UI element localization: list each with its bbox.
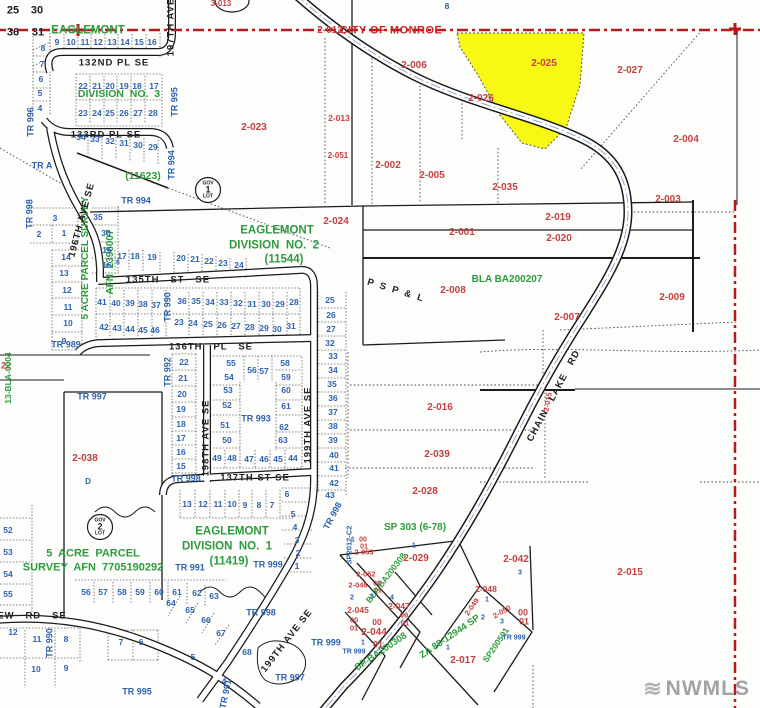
lot-number: 64 [166, 599, 175, 608]
lot-number: 25 [203, 320, 212, 329]
lot-number: 29 [148, 143, 157, 152]
lot-number: 8 [445, 2, 450, 11]
tract-label: TR 994 [121, 197, 151, 206]
lot-number: 37 [328, 408, 337, 417]
tract-label: TR 999 [343, 649, 366, 656]
plat-label: EAGLEMONT [51, 25, 124, 37]
lot-number: 35 [93, 213, 102, 222]
parcel-number: 2-051 [328, 152, 348, 160]
lot-number: 23 [78, 109, 87, 118]
lot-number: 65 [185, 606, 194, 615]
street-name: 132ND PL SE [79, 58, 150, 68]
lot-number: 32 [105, 137, 114, 146]
lot-number: 13 [107, 38, 116, 47]
street-name: CHAIN LAKE RD [526, 349, 583, 444]
street-name: 137TH ST SE [220, 473, 290, 483]
lot-number: 50 [222, 436, 231, 445]
lot-number: 8 [257, 501, 262, 510]
parcel-number: 2-017 [450, 656, 476, 666]
lot-number: 48 [227, 454, 236, 463]
lot-number: 56 [81, 588, 90, 597]
lot-number: 49 [212, 454, 221, 463]
lot-number: 29 [259, 324, 268, 333]
lot-number: 39 [328, 436, 337, 445]
lot-number: 63 [209, 592, 218, 601]
lot-number: 17 [149, 82, 158, 91]
lot-number: 1 [351, 537, 355, 544]
lot-number: 29 [275, 300, 284, 309]
tract-label: TR 999 [253, 561, 283, 570]
lot-number: 33 [90, 135, 99, 144]
lot-number: 51 [220, 421, 229, 430]
parcel-number: 2-048 [475, 585, 497, 594]
lot-number: 15 [176, 462, 185, 471]
lot-number: 22 [204, 257, 213, 266]
plat-map-canvas: 253036313-0138CITY OF MONROE2-0122-0062-… [0, 0, 760, 708]
lot-number: 52 [222, 401, 231, 410]
lot-number: 26 [326, 311, 335, 320]
lot-number: 5 [291, 510, 296, 519]
street-name: EW RD SE [0, 611, 67, 621]
tract-label: TR 991 [175, 564, 205, 573]
lot-number: 31 [119, 139, 128, 148]
lot-number: 18 [130, 252, 139, 261]
tract-label: TR 997 [77, 393, 107, 402]
lot-number: 26 [119, 109, 128, 118]
lot-number: 1 [295, 562, 300, 571]
parcel-number: 2-035 [492, 183, 518, 193]
lot-number: 1 [62, 229, 67, 238]
lot-number: 59 [135, 588, 144, 597]
lot-number: 37 [151, 301, 160, 310]
lot-number: 67 [216, 629, 225, 638]
parcel-number: 2-038 [72, 454, 98, 464]
lot-number: 14 [120, 38, 129, 47]
parcel-number: 2-001 [449, 228, 475, 238]
lot-number: 30 [272, 325, 281, 334]
street-name: 136TH PL SE [169, 342, 253, 352]
plat-label: ZA 88-12944 SP [418, 613, 482, 660]
lot-number: 41 [97, 298, 106, 307]
tract-label: TR 995 [122, 688, 152, 697]
lot-number: 1 [412, 543, 416, 550]
parcel-number: 2-047 [388, 602, 410, 611]
lot-number: 28 [289, 298, 298, 307]
lot-number: 33 [219, 298, 228, 307]
lot-number: 12 [62, 286, 71, 295]
lot-number: 18 [132, 82, 141, 91]
lot-number: 10 [31, 665, 40, 674]
lot-number: 4 [293, 523, 298, 532]
lot-number: 3 [518, 570, 522, 577]
lot-number: 28 [148, 109, 157, 118]
gov-lot-text: LOT [95, 532, 105, 537]
lot-number: 25 [325, 296, 334, 305]
lot-number: 44 [288, 454, 297, 463]
lot-number: 10 [66, 38, 75, 47]
parcel-number: 01 [360, 544, 368, 551]
gov-lot-text: LOT [203, 195, 213, 200]
lot-number: 26 [217, 321, 226, 330]
lot-number: 16 [176, 448, 185, 457]
lot-number: 9 [243, 501, 248, 510]
parcel-number: 2-042 [503, 555, 529, 565]
lot-number: 42 [329, 479, 338, 488]
tract-label: TR 999 [503, 635, 526, 642]
parcel-number: 2-020 [546, 234, 572, 244]
lot-number: 38 [138, 300, 147, 309]
lot-number: 11 [33, 635, 42, 644]
parcel-number: 2-004 [673, 135, 699, 145]
lot-number: 11 [81, 38, 90, 47]
plat-label: SP 303 (6-78) [384, 523, 446, 533]
tract-label: TR 996 [27, 107, 36, 137]
lot-number: 62 [279, 423, 288, 432]
lot-number: 61 [172, 588, 181, 597]
lot-number: 22 [78, 82, 87, 91]
lot-number: 56 [247, 366, 256, 375]
lot-number: 5 [191, 653, 196, 662]
parcel-number: 2-008 [440, 286, 466, 296]
parcel-number: 2-006 [401, 61, 427, 71]
lot-number: 34 [76, 133, 85, 142]
street-name: 199TH AVE SE [303, 387, 313, 464]
lot-number: 4 [38, 104, 43, 113]
lot-number: 15 [134, 38, 143, 47]
lot-number: 68 [242, 648, 251, 657]
lot-number: 52 [3, 526, 12, 535]
plat-label: (11419) [209, 556, 248, 568]
lot-number: 9 [62, 337, 67, 346]
lot-number: 31 [286, 322, 295, 331]
lot-number: 3 [370, 594, 374, 601]
tract-label: TR 998 [322, 501, 344, 531]
section-number: 30 [31, 6, 43, 17]
plat-label: SURVEY AFN 7705190292 [23, 563, 163, 574]
plat-label: 13-BLA-0004 [4, 352, 13, 404]
parcel-number: 2-013 [328, 114, 350, 123]
lot-number: 21 [178, 374, 187, 383]
lot-number: 24 [92, 109, 101, 118]
parcel-number: 2-016 [427, 403, 453, 413]
lot-number: 62 [192, 589, 201, 598]
parcel-number: 2-023 [241, 123, 267, 133]
lot-number: 59 [281, 373, 290, 382]
lot-number: 6 [139, 638, 144, 647]
lot-number: 2 [481, 615, 485, 622]
parcel-number: 01 [519, 618, 529, 627]
plat-label: EAGLEMONT [240, 225, 313, 237]
lot-number: 2 [296, 549, 301, 558]
lot-number: 2 [37, 230, 42, 239]
tract-label: TR 992 [164, 357, 173, 387]
lot-number: 16 [102, 261, 111, 270]
lot-number: 7 [270, 501, 275, 510]
lot-number: 35 [191, 297, 200, 306]
parcel-number: 2-028 [412, 487, 438, 497]
tract-label: TR 998 [26, 199, 35, 229]
lot-number: 58 [280, 359, 289, 368]
tract-label: TR 998 [171, 475, 201, 484]
plat-label: EAGLEMONT [195, 526, 268, 538]
lot-number: 5 [38, 89, 43, 98]
lot-number: 17 [176, 434, 185, 443]
lot-number: 43 [112, 324, 121, 333]
parcel-number: 2-025 [531, 59, 557, 69]
watermark-text: NWMLS [666, 677, 750, 701]
lot-number: 38 [328, 422, 337, 431]
plat-label: BLA BA200207 [472, 275, 543, 285]
nwmls-logo-icon: ≋ [643, 676, 661, 702]
watermark: ≋ NWMLS [643, 676, 750, 702]
lot-number: 7 [40, 60, 45, 69]
lot-number: 6 [39, 75, 44, 84]
parcel-number: 2-046 [348, 581, 367, 589]
lot-number: 10 [227, 500, 236, 509]
lot-number: 6 [116, 260, 120, 267]
lot-number: 39 [125, 299, 134, 308]
lot-number: 31 [247, 300, 256, 309]
section-number: 36 [7, 28, 19, 39]
lot-number: 24 [234, 261, 243, 270]
lot-number: 32 [233, 299, 242, 308]
parcel-number: 2-024 [323, 217, 349, 227]
lot-number: 8 [64, 635, 69, 644]
lot-number: 24 [188, 319, 197, 328]
lot-number: D [85, 478, 91, 486]
lot-number: 20 [105, 82, 114, 91]
lot-number: 8 [41, 44, 46, 53]
lot-number: 18 [176, 420, 185, 429]
parcel-number: 2-044 [361, 628, 387, 638]
lot-number: 55 [3, 590, 12, 599]
lot-number: 57 [259, 367, 268, 376]
tract-label: TR 998 [246, 609, 276, 618]
lot-number: 12 [198, 500, 207, 509]
lot-number: 3 [500, 619, 504, 626]
lot-number: 36 [101, 229, 110, 238]
parcel-number: 2-009 [659, 293, 685, 303]
lot-number: 3 [295, 536, 300, 545]
lot-number: 23 [218, 259, 227, 268]
tract-label: TR 990 [46, 628, 55, 658]
lot-number: 36 [177, 297, 186, 306]
plat-label: (11623) [125, 171, 161, 182]
tract-label: TR 990 [164, 292, 173, 322]
lot-number: 9 [64, 664, 69, 673]
lot-number: 1 [361, 640, 365, 647]
lot-number: 2 [350, 595, 354, 602]
lot-number: 14 [61, 253, 70, 262]
tract-label: TR A [32, 162, 53, 171]
lot-number: 6 [285, 490, 290, 499]
lot-number: 15 [102, 246, 111, 255]
lot-number: 10 [63, 319, 72, 328]
map-labels-layer: 253036313-0138CITY OF MONROE2-0122-0062-… [0, 0, 760, 708]
lot-number: 36 [328, 394, 337, 403]
plat-label: DIVISION NO. 1 [182, 541, 272, 553]
tract-label: TR 995 [171, 87, 180, 117]
plat-label: DIVISION NO. 2 [229, 240, 319, 252]
lot-number: 12 [8, 628, 17, 637]
lot-number: 22 [179, 358, 188, 367]
lot-number: 45 [273, 455, 282, 464]
parcel-number: 2-052 [356, 570, 375, 578]
lot-number: 60 [154, 588, 163, 597]
lot-number: 16 [147, 38, 156, 47]
parcel-number: 2-045 [347, 606, 369, 615]
lot-number: 1 [446, 645, 450, 652]
lot-number: 40 [111, 299, 120, 308]
lot-number: 54 [3, 570, 12, 579]
lot-number: 41 [329, 464, 338, 473]
lot-number: 27 [133, 109, 142, 118]
lot-number: 19 [176, 405, 185, 414]
lot-number: 58 [117, 588, 126, 597]
parcel-number: 2-012 [317, 26, 343, 36]
tract-label: TR 997 [275, 674, 305, 683]
plat-label: (11544) [264, 254, 303, 266]
lot-number: 7 [119, 638, 124, 647]
lot-number: 34 [328, 366, 337, 375]
lot-number: 47 [244, 455, 253, 464]
lot-number: 55 [226, 359, 235, 368]
lot-number: 40 [329, 451, 338, 460]
section-number: 31 [32, 28, 44, 39]
lot-number: 21 [92, 82, 101, 91]
lot-number: 25 [105, 109, 114, 118]
lot-number: 53 [3, 548, 12, 557]
street-name: 199TH AVE SE [260, 608, 315, 674]
parcel-number: 2-007 [554, 313, 580, 323]
tract-label: TR 993 [241, 415, 271, 424]
city-limit-label: CITY OF MONROE [340, 26, 443, 37]
lot-number: 54 [224, 373, 233, 382]
lot-number: 42 [99, 323, 108, 332]
street-name: 198TH AVE SE [201, 400, 211, 477]
lot-number: 30 [261, 300, 270, 309]
tract-label: TR 994 [168, 150, 177, 180]
parcel-number: 3-013 [211, 0, 231, 8]
lot-number: 45 [138, 326, 147, 335]
parcel-number: 2-003 [655, 195, 681, 205]
lot-number: 9 [55, 38, 60, 47]
lot-number: 20 [177, 390, 186, 399]
lot-number: 13 [182, 500, 191, 509]
lot-number: 20 [176, 254, 185, 263]
lot-number: 23 [174, 318, 183, 327]
lot-number: 32 [325, 339, 334, 348]
parcel-number: 01 [401, 619, 409, 627]
lot-number: 66 [201, 616, 210, 625]
lot-number: 35 [327, 380, 336, 389]
parcel-number: 00 [372, 618, 381, 627]
lot-number: 44 [125, 325, 134, 334]
lot-number: 21 [190, 255, 199, 264]
lot-number: 3 [53, 214, 58, 223]
plat-label: 5 ACRE PARCEL [46, 549, 140, 560]
tract-label: TR 999 [311, 639, 341, 648]
plat-label: SP200501 [481, 626, 510, 664]
lot-number: 19 [147, 253, 156, 262]
lot-number: 27 [326, 325, 335, 334]
lot-number: 27 [231, 322, 240, 331]
parcel-number: 00 [359, 537, 367, 544]
street-name: 135TH ST SE [126, 275, 210, 285]
lot-number: 53 [223, 386, 232, 395]
lot-number: 12 [93, 38, 102, 47]
lot-number: 43 [325, 491, 334, 500]
parcel-number: 2-002 [375, 161, 401, 171]
lot-number: 34 [205, 298, 214, 307]
lot-number: 60 [281, 386, 290, 395]
lot-number: 11 [214, 500, 223, 509]
lot-number: 33 [328, 352, 337, 361]
lot-number: 46 [259, 455, 268, 464]
parcel-number: 2-019 [545, 213, 571, 223]
parcel-number: 01 [350, 624, 358, 632]
section-number: 25 [7, 6, 19, 17]
parcel-number: 2-015 [617, 568, 643, 578]
parcel-number: 2-005 [419, 171, 445, 181]
lot-number: 46 [150, 326, 159, 335]
street-name: P S P & L [366, 278, 426, 305]
lot-number: 13 [59, 269, 68, 278]
lot-number: 4 [222, 677, 227, 686]
lot-number: 61 [281, 402, 290, 411]
lot-number: 57 [98, 588, 107, 597]
parcel-number: 2-039 [424, 450, 450, 460]
lot-number: 1 [485, 597, 489, 604]
lot-number: 11 [64, 303, 73, 312]
street-name: 197TH AVE [166, 0, 176, 56]
parcel-number: 2-027 [617, 66, 643, 76]
lot-number: 63 [278, 436, 287, 445]
parcel-number: 2-026 [468, 94, 494, 104]
lot-number: 19 [119, 82, 128, 91]
lot-number: 4 [390, 595, 394, 602]
tract-label: SP2012-C2 [345, 526, 353, 565]
lot-number: 30 [133, 141, 142, 150]
lot-number: 28 [245, 323, 254, 332]
